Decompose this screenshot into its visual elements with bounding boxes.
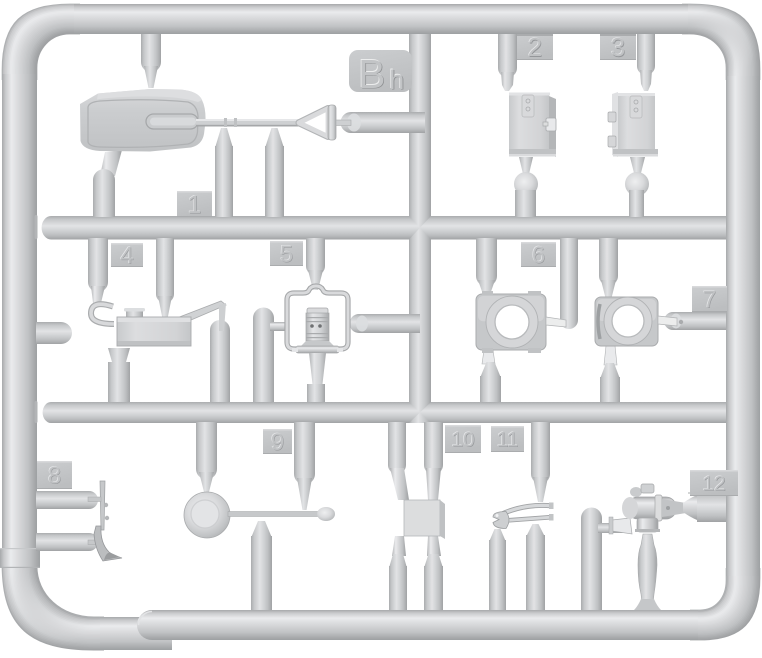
svg-text:7: 7 [703,287,716,314]
svg-text:8: 8 [48,463,61,490]
svg-text:9: 9 [271,429,284,456]
svg-text:4: 4 [120,243,133,270]
svg-text:h: h [389,65,404,95]
svg-text:2: 2 [528,32,542,62]
svg-text:11: 11 [497,428,519,451]
svg-text:3: 3 [611,32,625,62]
svg-text:5: 5 [280,241,293,268]
svg-text:6: 6 [532,242,545,269]
svg-text:12: 12 [702,472,725,495]
svg-text:10: 10 [451,428,474,451]
svg-text:1: 1 [188,191,202,219]
svg-text:B: B [358,51,385,97]
